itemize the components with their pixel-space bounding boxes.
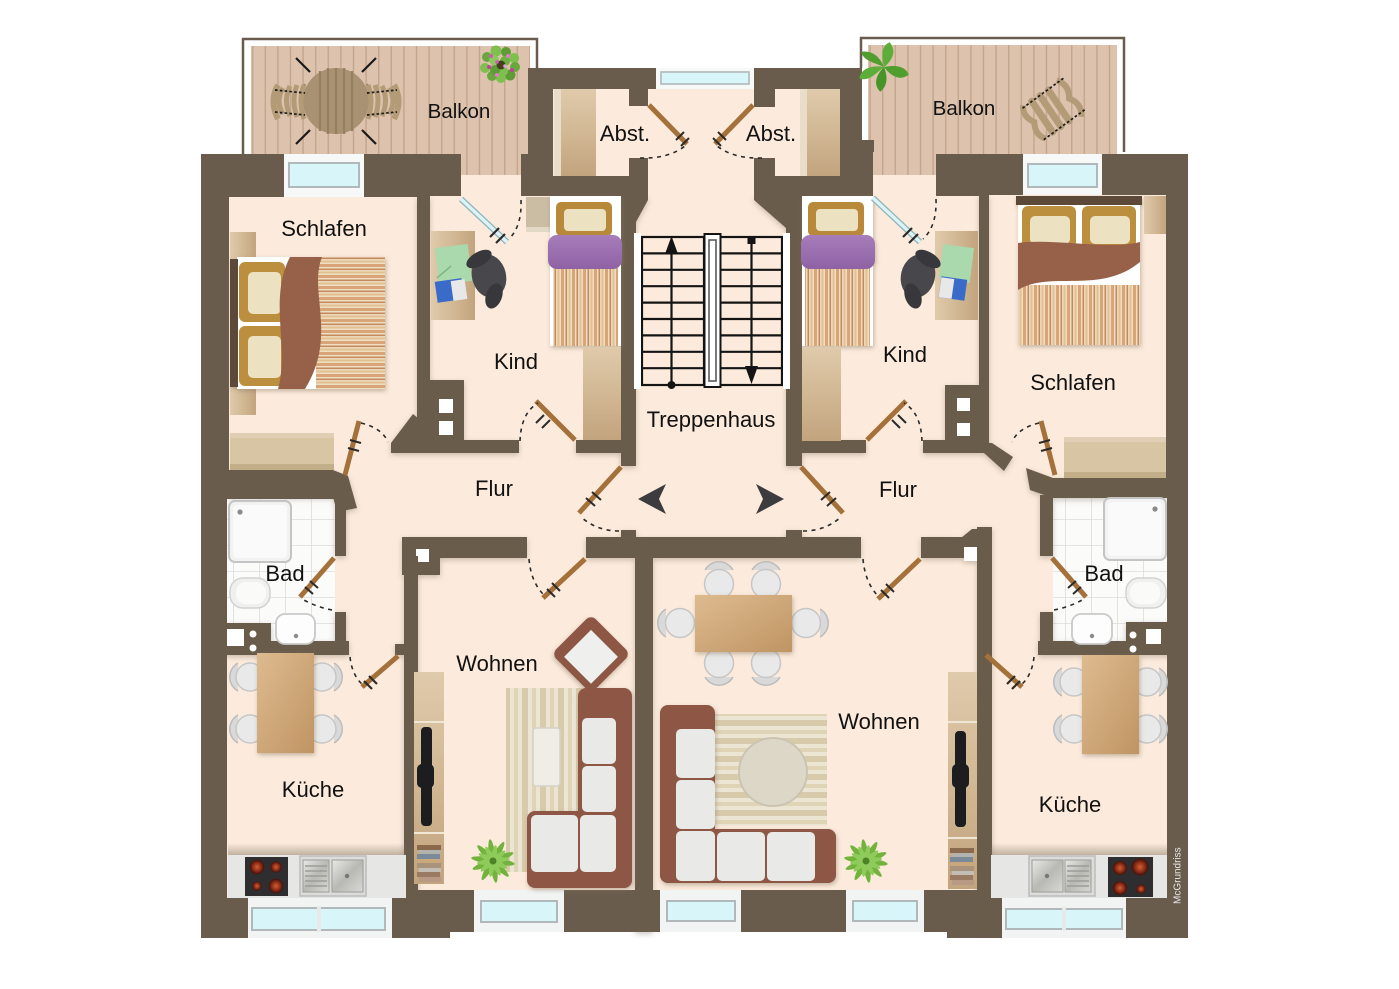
svg-text:Balkon: Balkon <box>933 97 996 120</box>
svg-text:Bad: Bad <box>265 561 304 586</box>
svg-text:Treppenhaus: Treppenhaus <box>647 407 776 432</box>
svg-text:Flur: Flur <box>475 476 513 501</box>
svg-text:Kind: Kind <box>883 342 927 367</box>
svg-text:Balkon: Balkon <box>428 100 491 123</box>
svg-text:Bad: Bad <box>1084 561 1123 586</box>
svg-text:Küche: Küche <box>282 777 344 802</box>
svg-text:Wohnen: Wohnen <box>456 651 538 676</box>
svg-text:Abst.: Abst. <box>600 121 650 146</box>
svg-text:Kind: Kind <box>494 349 538 374</box>
svg-text:Schlafen: Schlafen <box>1030 370 1116 395</box>
svg-text:Abst.: Abst. <box>746 121 796 146</box>
svg-text:McGrundriss: McGrundriss <box>1173 847 1184 904</box>
svg-text:Flur: Flur <box>879 477 917 502</box>
svg-text:Küche: Küche <box>1039 792 1101 817</box>
svg-text:Schlafen: Schlafen <box>281 216 367 241</box>
svg-text:Wohnen: Wohnen <box>838 709 920 734</box>
